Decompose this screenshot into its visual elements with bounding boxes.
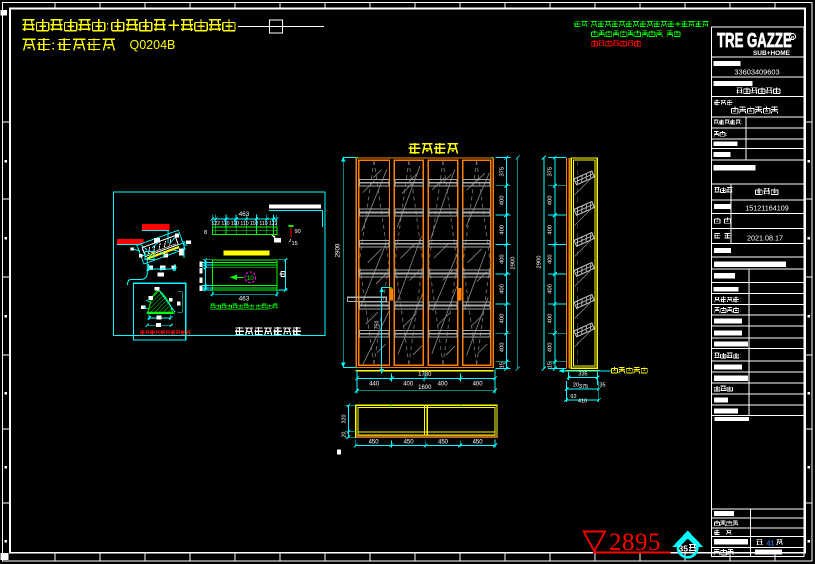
svg-text:450: 450 [473,439,484,445]
svg-text:750: 750 [375,321,381,330]
svg-text:2900: 2900 [537,256,543,269]
svg-text:400: 400 [499,196,505,206]
svg-text:450: 450 [438,439,449,445]
svg-text:400: 400 [499,314,505,324]
svg-text:375: 375 [548,167,554,177]
svg-text:400: 400 [403,382,414,388]
svg-text:400: 400 [548,196,554,206]
svg-text:400: 400 [473,382,484,388]
svg-text:20: 20 [341,432,347,438]
svg-text:400: 400 [548,225,554,235]
svg-text:400: 400 [548,254,554,264]
svg-text:375: 375 [499,167,505,177]
svg-text:10: 10 [247,275,254,282]
svg-text:400: 400 [548,343,554,353]
svg-text:15121164109: 15121164109 [745,204,788,213]
svg-text:90: 90 [295,229,301,235]
svg-text:400: 400 [548,314,554,324]
svg-text:400: 400 [499,343,505,353]
svg-text:1600: 1600 [418,385,432,391]
svg-text:450: 450 [369,439,380,445]
svg-text:15: 15 [548,362,554,368]
svg-text:8: 8 [204,230,207,236]
svg-text:450: 450 [404,439,415,445]
svg-text:41: 41 [767,541,775,548]
svg-text:440: 440 [369,382,380,388]
svg-text:92: 92 [570,394,576,400]
svg-text:375: 375 [579,384,588,390]
svg-text:2900: 2900 [335,243,342,257]
svg-text:35: 35 [679,544,689,554]
svg-text:400: 400 [499,284,505,294]
svg-text:122 110 110 110 110 110 122: 122 110 110 110 110 110 122 [212,221,278,227]
svg-text:1780: 1780 [418,372,432,378]
svg-text:410: 410 [578,398,587,404]
svg-text:15: 15 [292,241,298,247]
svg-text:33603409603: 33603409603 [734,68,779,77]
svg-text:TRE GAZZE: TRE GAZZE [717,29,792,51]
svg-text:SUB+HOME: SUB+HOME [753,50,791,57]
svg-text:400: 400 [499,225,505,235]
svg-text:320: 320 [341,415,347,424]
svg-text:35: 35 [599,383,605,389]
svg-text:463: 463 [239,211,250,218]
svg-text:15: 15 [499,362,505,368]
svg-text:335: 335 [578,372,587,378]
svg-text:400: 400 [438,382,449,388]
svg-text:2021.08.17: 2021.08.17 [747,234,783,243]
svg-text:2900: 2900 [511,257,517,270]
svg-text:463: 463 [239,296,250,303]
svg-text:400: 400 [499,254,505,264]
svg-text:Q0204B: Q0204B [130,38,176,52]
svg-text:400: 400 [548,284,554,294]
